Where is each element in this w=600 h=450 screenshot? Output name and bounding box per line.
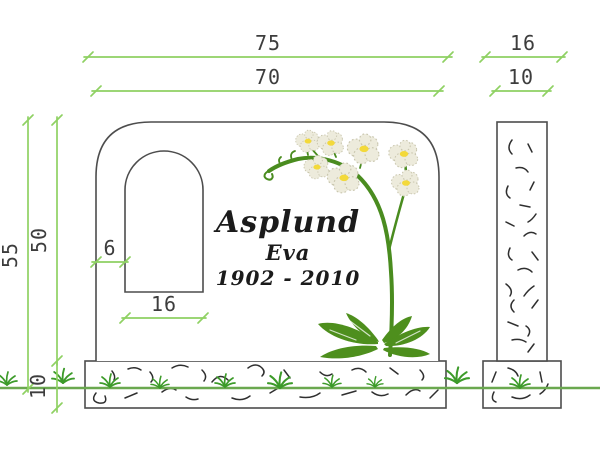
dimension-side-base-depth: 16 <box>480 31 567 62</box>
dimension-label-50: 50 <box>27 227 51 253</box>
dimension-label-6: 6 <box>103 236 116 260</box>
side-stone-outline <box>497 122 547 361</box>
dimension-label-10-base: 10 <box>26 373 50 399</box>
dimension-label-55: 55 <box>0 242 22 268</box>
dimension-label-75: 75 <box>255 31 281 55</box>
inscription-given-name: Eva <box>265 240 311 265</box>
photo-niche <box>125 151 203 292</box>
dimension-base-height: 10 <box>26 361 62 413</box>
dimension-label-10-side: 10 <box>508 65 534 89</box>
dimension-label-16-side: 16 <box>510 31 536 55</box>
dimension-label-16-niche: 16 <box>151 292 177 316</box>
gravestone-technical-drawing: Asplund Eva 1902 - 2010 <box>0 0 600 450</box>
front-view: Asplund Eva 1902 - 2010 <box>85 122 446 408</box>
dimension-front-total-width: 75 <box>83 31 453 62</box>
dimension-side-stone-depth: 10 <box>490 65 553 96</box>
inscription-surname: Asplund <box>213 205 360 240</box>
front-base-slab <box>85 361 446 408</box>
dimension-front-stone-height: 50 <box>27 115 62 366</box>
side-view <box>483 122 561 408</box>
dimension-front-total-height: 55 <box>0 115 33 394</box>
inscription-years: 1902 - 2010 <box>216 266 361 290</box>
dimension-front-stone-width: 70 <box>91 65 444 96</box>
dimension-label-70: 70 <box>255 65 281 89</box>
